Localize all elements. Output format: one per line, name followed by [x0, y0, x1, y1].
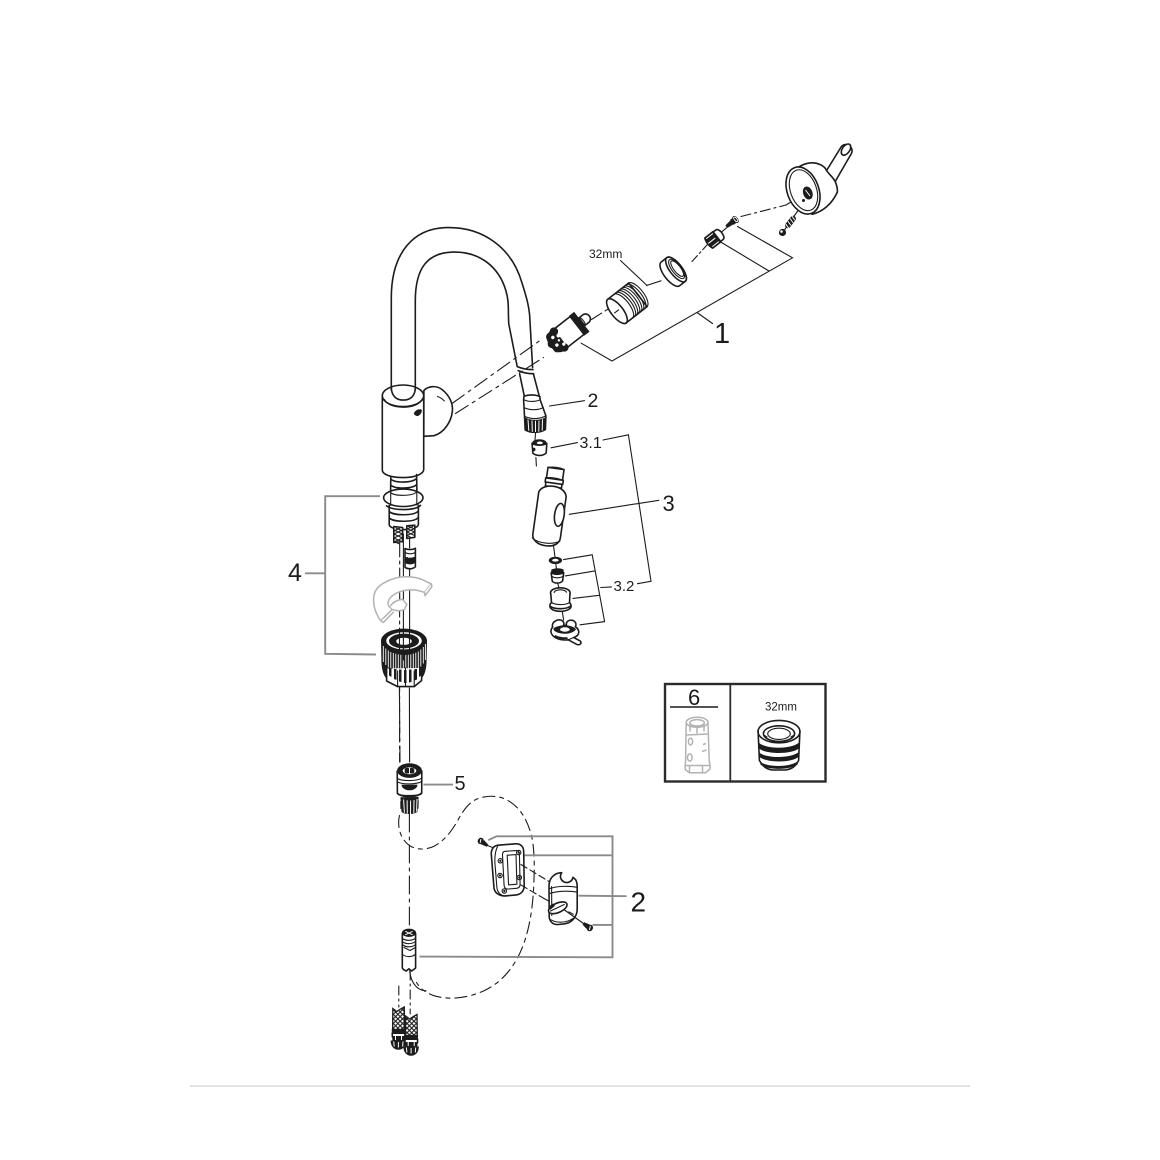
- svg-text:2: 2: [588, 390, 599, 412]
- svg-text:3.2: 3.2: [614, 578, 635, 595]
- svg-text:1: 1: [714, 318, 730, 350]
- svg-text:32mm: 32mm: [765, 702, 797, 714]
- svg-text:5: 5: [455, 773, 466, 795]
- svg-text:3: 3: [663, 491, 675, 516]
- svg-text:32mm: 32mm: [589, 247, 622, 261]
- svg-text:2: 2: [631, 887, 647, 918]
- svg-text:4: 4: [288, 559, 302, 587]
- svg-text:3.1: 3.1: [580, 435, 602, 452]
